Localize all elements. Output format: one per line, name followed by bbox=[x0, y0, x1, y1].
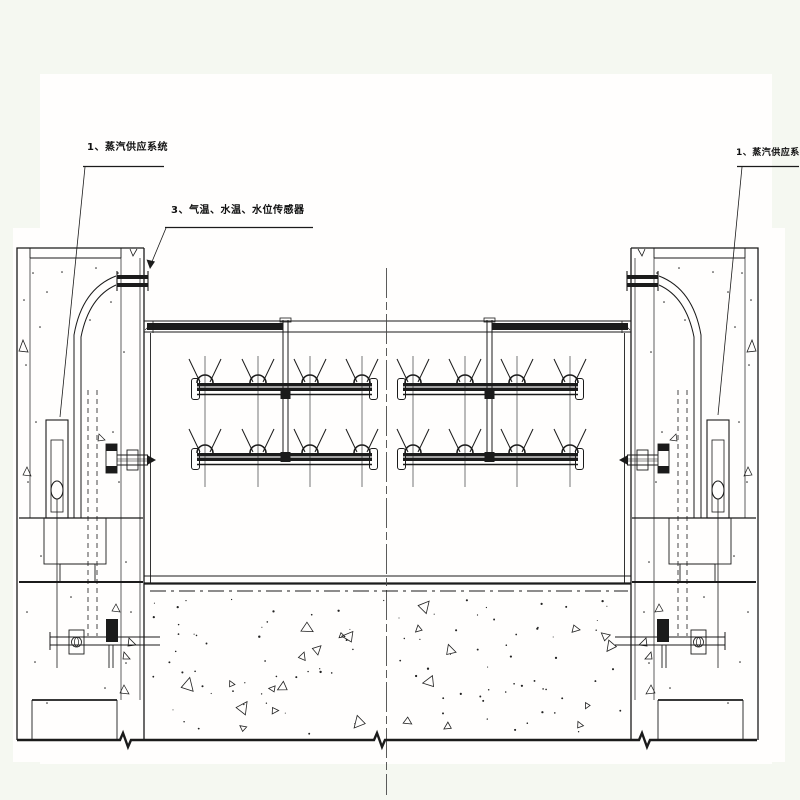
label-steam-supply-left: 1、蒸汽供应系统 bbox=[87, 138, 168, 153]
cad-drawing bbox=[0, 0, 800, 800]
label-sensors: 3、气温、水温、水位传感器 bbox=[171, 201, 304, 216]
foundation-line bbox=[17, 733, 757, 747]
left-section bbox=[17, 248, 388, 740]
leader-line-sensors bbox=[151, 228, 166, 264]
right-section bbox=[388, 248, 759, 740]
label-steam-supply-right: 1、蒸汽供应系统 bbox=[736, 145, 800, 158]
leader-line-steam-right bbox=[718, 167, 742, 415]
drawing-sheet: 1、蒸汽供应系统 3、气温、水温、水位传感器 1、蒸汽供应系统 bbox=[0, 0, 800, 800]
leader-arrow-sensors bbox=[147, 260, 156, 270]
